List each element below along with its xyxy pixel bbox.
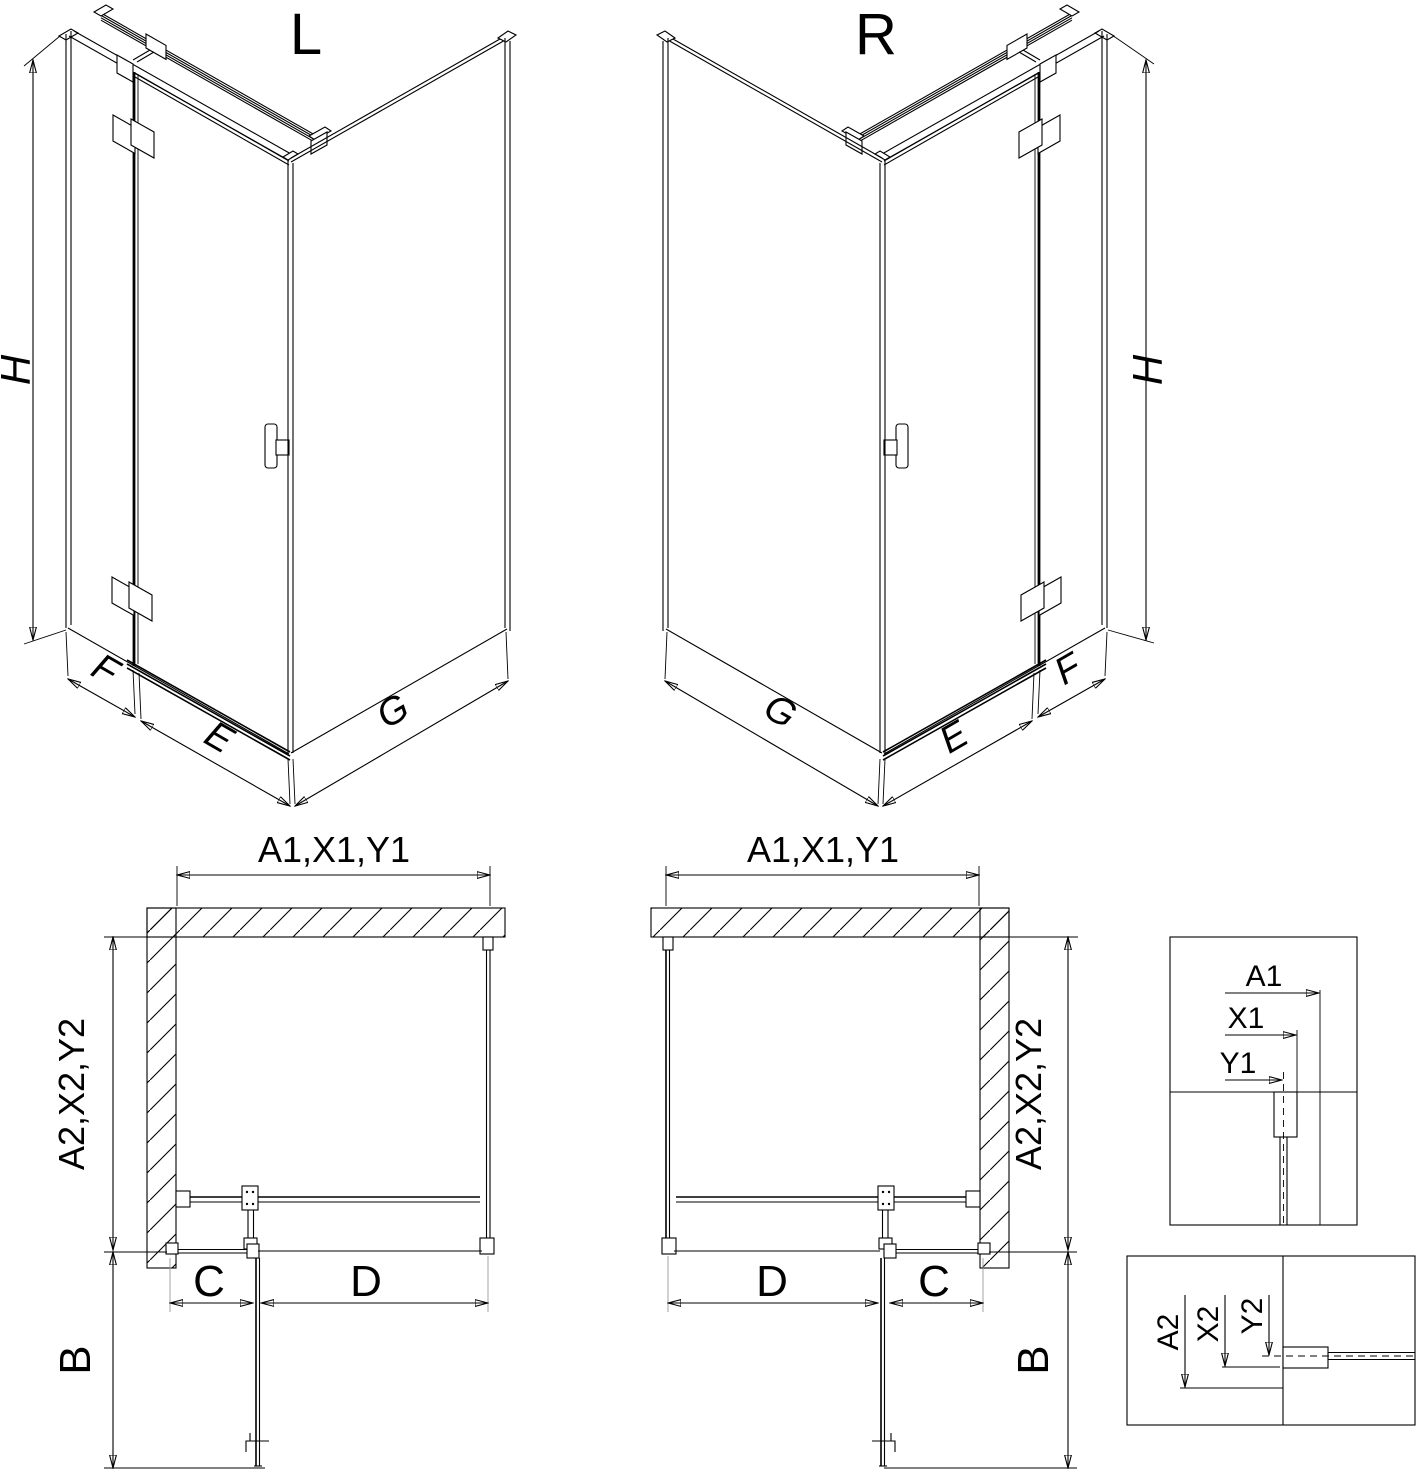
top-edge xyxy=(666,39,882,162)
dim-label-a2: A2,X2,Y2 xyxy=(1008,1018,1049,1170)
dim-extension xyxy=(133,670,135,714)
dim-c-right: C xyxy=(890,1257,983,1312)
bar-wall-bracket xyxy=(176,1191,190,1207)
wall-profile-section xyxy=(1283,1347,1328,1368)
dim-d-right: D xyxy=(668,1256,878,1312)
drawing-sheet: L H xyxy=(0,0,1426,1476)
door-handle-plate xyxy=(276,440,289,455)
return-panel-left xyxy=(291,31,516,753)
hinge-bottom xyxy=(112,577,152,621)
top-edge xyxy=(291,39,507,162)
dim-label-a2: A2,X2,Y2 xyxy=(51,1018,92,1170)
dim-y1-arrow: Y1 xyxy=(1220,1047,1282,1080)
bar-tee-connector xyxy=(242,1186,258,1210)
hinge-top xyxy=(113,115,154,158)
bar-strut xyxy=(1019,52,1036,62)
dim-label-h: H xyxy=(0,354,39,385)
door-pivot-bracket xyxy=(247,1244,259,1258)
bar-clamp xyxy=(1007,34,1027,59)
iso-view-right: R H xyxy=(657,2,1171,806)
open-door xyxy=(872,1258,895,1466)
dim-label-c: C xyxy=(193,1257,225,1306)
dim-extension xyxy=(883,759,885,804)
bar-clamp xyxy=(146,34,166,59)
enclosure-right xyxy=(662,937,1077,1466)
corner-bracket xyxy=(480,1238,494,1254)
bar-wall-bracket xyxy=(966,1191,980,1207)
dim-extension xyxy=(1032,673,1034,719)
top-edge xyxy=(291,35,507,158)
bottom-edge xyxy=(291,629,507,753)
dim-label-g: G xyxy=(757,686,804,737)
wall-top xyxy=(651,908,1009,937)
dim-y2-arrow: Y2 xyxy=(1236,1295,1269,1355)
dim-extension xyxy=(293,759,295,804)
dim-extension xyxy=(506,632,508,679)
return-panel-right xyxy=(657,31,882,753)
dim-a1-right: A1,X1,Y1 xyxy=(666,829,979,906)
dim-x2-arrow: X2 xyxy=(1192,1295,1225,1366)
open-door xyxy=(246,1258,269,1466)
dim-label-c: C xyxy=(918,1257,950,1306)
dim-extension xyxy=(24,630,66,644)
dim-label-b: B xyxy=(1009,1345,1058,1374)
panel-top-cap xyxy=(59,29,78,40)
side-panel-right xyxy=(882,29,1114,754)
technical-drawing: L H xyxy=(0,0,1426,1476)
dim-extension xyxy=(1112,35,1154,64)
dim-label-h: H xyxy=(1124,354,1171,385)
wall-profile-bottom xyxy=(978,1243,990,1254)
bar-strut xyxy=(133,50,150,60)
dim-label: Y2 xyxy=(1236,1298,1269,1335)
panel-top-cap xyxy=(1095,29,1114,40)
side-panel-left xyxy=(59,29,291,754)
dim-extension xyxy=(24,36,60,66)
bar-end-cap xyxy=(1060,5,1079,16)
dim-height-right: H xyxy=(1108,35,1171,643)
dim-extension xyxy=(1038,670,1040,714)
dim-x1-arrow: X1 xyxy=(1225,1002,1296,1035)
dim-f-left: F xyxy=(66,632,135,717)
wall-side xyxy=(980,908,1009,1268)
door-handle xyxy=(265,424,277,468)
top-rim xyxy=(74,31,291,154)
door-top-edge xyxy=(135,77,289,165)
iso-view-left: L H xyxy=(0,2,516,806)
dim-b-left: B xyxy=(51,1252,265,1468)
dim-label-f: F xyxy=(1047,645,1090,694)
dim-label: X1 xyxy=(1228,1002,1265,1035)
door-top-edge xyxy=(884,73,1038,161)
hinge-top xyxy=(1019,115,1060,158)
panel-top-cap xyxy=(498,31,516,42)
bar-strut xyxy=(137,52,154,62)
wall-profile xyxy=(663,937,673,950)
door-handle-plate xyxy=(884,440,897,455)
hinge-bottom xyxy=(1021,577,1061,621)
dim-d-left: D xyxy=(261,1256,488,1312)
dim-height-left: H xyxy=(0,36,66,644)
dim-g-left: G xyxy=(293,632,508,806)
dim-label: Y1 xyxy=(1220,1047,1257,1080)
top-edge xyxy=(666,35,882,158)
door-top-bracket xyxy=(1040,55,1056,82)
dim-label: A2 xyxy=(1152,1314,1185,1351)
dim-c-left: C xyxy=(170,1257,253,1312)
dim-a2-left: A2,X2,Y2 xyxy=(51,937,152,1250)
door-top-edge xyxy=(135,73,289,161)
corner-bracket xyxy=(662,1238,676,1254)
dim-a1-arrow: A1 xyxy=(1225,960,1319,993)
wall-top xyxy=(147,908,505,937)
dim-extension xyxy=(665,632,667,679)
dim-a1-left: A1,X1,Y1 xyxy=(177,829,490,906)
door-panel-right xyxy=(883,72,1061,760)
dim-label-a1: A1,X1,Y1 xyxy=(747,829,899,870)
dim-a2-arrow: A2 xyxy=(1152,1295,1185,1387)
plan-view-left: A1,X1,Y1 A2,X2,Y2 B C D xyxy=(51,829,505,1468)
detail-inset-depth: A2 X2 Y2 xyxy=(1127,1256,1415,1425)
view-title-left: L xyxy=(290,2,322,67)
bar-tee-connector xyxy=(878,1186,894,1210)
bar-strut xyxy=(1023,50,1040,60)
dim-label-g: G xyxy=(370,686,417,737)
plan-view-right: A1,X1,Y1 A2,X2,Y2 B C D xyxy=(651,829,1078,1468)
dim-extension xyxy=(288,759,290,804)
dim-extension xyxy=(66,632,68,676)
dim-label: A1 xyxy=(1246,960,1283,993)
door-top-bracket xyxy=(117,55,133,82)
door-pivot-bracket xyxy=(884,1244,896,1258)
bar-end-cap xyxy=(94,5,113,16)
dim-extension xyxy=(139,673,141,719)
door-handle xyxy=(872,1433,895,1452)
dim-label-d: D xyxy=(350,1257,382,1306)
door-handle xyxy=(246,1433,269,1452)
dim-extension xyxy=(1108,630,1154,643)
wall-side xyxy=(147,908,176,1268)
wall-profile-bottom xyxy=(166,1243,178,1254)
dim-label-a1: A1,X1,Y1 xyxy=(258,829,410,870)
wall-profile xyxy=(483,937,493,950)
dim-label-b: B xyxy=(51,1345,100,1374)
door-panel-left xyxy=(112,72,290,760)
door-handle xyxy=(896,424,908,468)
top-rim xyxy=(882,31,1099,154)
dim-extension xyxy=(878,759,880,804)
dim-b-right: B xyxy=(884,1252,1077,1468)
dim-label-f: F xyxy=(84,646,127,695)
dim-g-right: G xyxy=(665,632,880,806)
wall-profile-section xyxy=(1274,1092,1297,1137)
dim-f-right: F xyxy=(1038,632,1107,717)
dim-label: X2 xyxy=(1192,1306,1225,1343)
dim-a2-right: A2,X2,Y2 xyxy=(1006,937,1078,1250)
dim-extension xyxy=(1105,632,1107,676)
panel-top-cap xyxy=(657,31,675,42)
detail-inset-width: A1 X1 Y1 xyxy=(1170,937,1357,1225)
door-top-edge xyxy=(884,77,1038,165)
dim-label-d: D xyxy=(756,1257,788,1306)
view-title-right: R xyxy=(855,2,897,67)
